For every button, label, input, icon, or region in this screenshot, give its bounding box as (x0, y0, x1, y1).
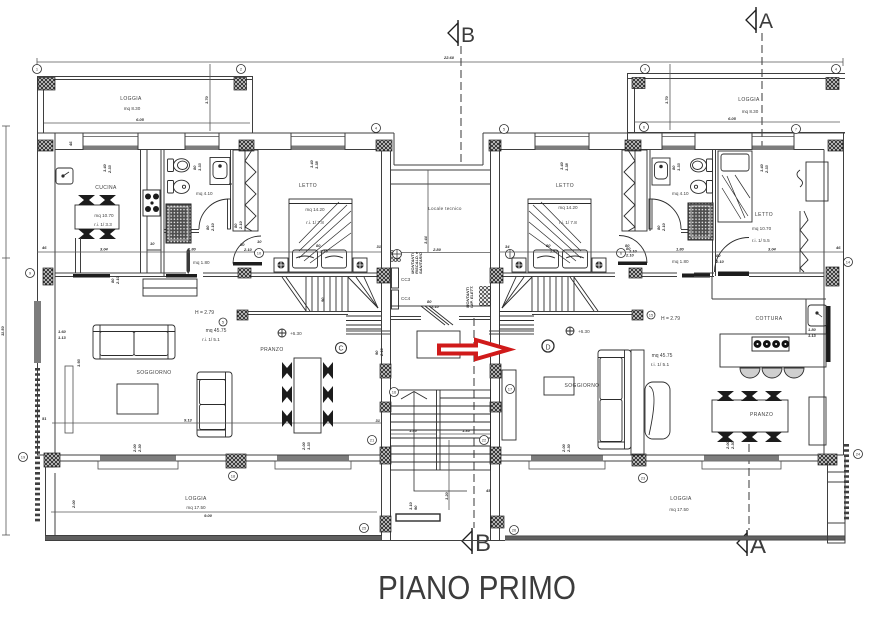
svg-text:mq 45.75: mq 45.75 (652, 353, 673, 359)
svg-text:1.33: 1.33 (197, 162, 202, 171)
svg-text:r.i. 1/ 5.5: r.i. 1/ 5.5 (752, 238, 770, 243)
svg-text:+6.30: +6.30 (290, 331, 302, 336)
svg-text:2.30: 2.30 (566, 443, 571, 453)
svg-text:mq 17.50: mq 17.50 (669, 507, 689, 512)
svg-text:SANITARIO: SANITARIO (418, 251, 423, 274)
svg-text:2.10: 2.10 (549, 249, 559, 254)
svg-text:mq 10.70: mq 10.70 (94, 213, 114, 218)
svg-text:31: 31 (377, 244, 382, 249)
svg-text:COTTURA: COTTURA (756, 316, 783, 322)
svg-text:80: 80 (716, 253, 721, 258)
svg-text:LOGGIA: LOGGIA (120, 96, 142, 102)
svg-text:SOGGIORNO: SOGGIORNO (565, 383, 600, 389)
svg-text:mq 4.10: mq 4.10 (672, 191, 689, 196)
svg-text:2.10: 2.10 (238, 220, 243, 230)
svg-text:LOGGIA: LOGGIA (738, 97, 760, 103)
svg-text:CUCINA: CUCINA (95, 185, 117, 191)
svg-text:19: 19 (21, 455, 26, 460)
svg-text:CC4: CC4 (401, 296, 411, 301)
svg-text:mq 8.30: mq 8.30 (124, 106, 141, 111)
svg-text:A: A (759, 10, 773, 33)
svg-text:2.10: 2.10 (210, 222, 215, 232)
svg-text:Locale tecnico: Locale tecnico (428, 206, 462, 211)
svg-text:2.10: 2.10 (115, 275, 120, 285)
svg-text:2.30: 2.30 (730, 440, 735, 450)
svg-text:14: 14 (846, 260, 851, 265)
svg-text:2.10: 2.10 (430, 304, 440, 309)
svg-text:mq 10.70: mq 10.70 (752, 226, 772, 231)
svg-text:mq 14.20: mq 14.20 (305, 207, 325, 212)
svg-text:PIANO PRIMO: PIANO PRIMO (378, 570, 576, 607)
svg-text:r.i. 1/ 3.3: r.i. 1/ 3.3 (94, 222, 112, 227)
svg-text:2.10: 2.10 (243, 247, 253, 252)
svg-text:11.50: 11.50 (0, 326, 5, 336)
svg-text:r.i. 1/ 5.1: r.i. 1/ 5.1 (202, 337, 220, 342)
svg-text:mq 14.20: mq 14.20 (558, 205, 578, 210)
svg-text:22.60: 22.60 (443, 55, 455, 60)
svg-text:D: D (545, 345, 550, 352)
svg-text:16: 16 (392, 390, 397, 395)
svg-text:34: 34 (505, 244, 510, 249)
svg-text:B: B (475, 530, 491, 557)
svg-text:1.30: 1.30 (409, 428, 418, 433)
svg-text:3.44: 3.44 (423, 235, 428, 244)
svg-text:2.10: 2.10 (628, 249, 638, 254)
svg-text:90: 90 (413, 505, 418, 510)
svg-text:2.30: 2.30 (137, 443, 142, 453)
svg-text:1.93: 1.93 (76, 358, 81, 367)
svg-text:LETTO: LETTO (556, 183, 574, 189)
svg-text:1.30: 1.30 (462, 428, 471, 433)
svg-text:1.80: 1.80 (676, 247, 685, 252)
svg-text:1.13: 1.13 (58, 335, 67, 340)
svg-text:46: 46 (41, 245, 47, 250)
svg-text:15: 15 (649, 313, 654, 318)
svg-text:PRANZO: PRANZO (260, 347, 283, 353)
svg-text:1.70: 1.70 (664, 95, 669, 104)
svg-text:1.80: 1.80 (808, 327, 817, 332)
svg-text:+6.30: +6.30 (578, 329, 590, 334)
svg-text:6.05: 6.05 (136, 117, 145, 122)
svg-text:r.i. 1/ 5.1: r.i. 1/ 5.1 (651, 362, 670, 368)
svg-text:2.10: 2.10 (661, 222, 666, 232)
svg-text:r.i. 1/ 7.8: r.i. 1/ 7.8 (306, 220, 324, 225)
svg-text:24: 24 (856, 452, 861, 457)
svg-text:1.38: 1.38 (314, 160, 319, 169)
svg-text:2.33: 2.33 (107, 164, 112, 174)
svg-text:21: 21 (370, 438, 375, 443)
svg-text:3.04: 3.04 (768, 247, 777, 252)
svg-text:mq 4.10: mq 4.10 (196, 191, 213, 196)
svg-text:2.10: 2.10 (379, 347, 384, 357)
svg-text:26: 26 (512, 528, 517, 533)
svg-text:LETTO: LETTO (299, 183, 317, 189)
svg-text:10: 10 (257, 239, 262, 244)
svg-text:10: 10 (150, 241, 155, 246)
svg-text:LOGGIA: LOGGIA (670, 496, 692, 502)
svg-text:LETTO: LETTO (755, 212, 773, 218)
svg-text:mq 8.30: mq 8.30 (742, 109, 759, 114)
svg-text:CC3: CC3 (401, 277, 411, 282)
svg-text:46: 46 (68, 141, 73, 147)
svg-text:2.10: 2.10 (715, 259, 725, 264)
svg-text:2.33: 2.33 (764, 164, 769, 174)
svg-text:10: 10 (257, 251, 262, 256)
svg-text:1.33: 1.33 (676, 162, 681, 171)
svg-text:46: 46 (835, 245, 841, 250)
svg-text:H = 2.79: H = 2.79 (195, 310, 214, 316)
svg-text:9.13: 9.13 (184, 418, 193, 423)
svg-text:18: 18 (231, 474, 236, 479)
svg-text:3.04: 3.04 (100, 247, 109, 252)
svg-text:1.38: 1.38 (564, 162, 569, 171)
svg-text:PRANZO: PRANZO (750, 412, 773, 418)
svg-text:45: 45 (485, 488, 491, 493)
svg-text:r.i. 1/ 7.8: r.i. 1/ 7.8 (559, 220, 577, 225)
svg-text:25: 25 (362, 526, 367, 531)
svg-text:mq 45.75: mq 45.75 (206, 328, 227, 334)
svg-text:LOGGIA: LOGGIA (185, 496, 207, 502)
svg-text:C: C (338, 346, 343, 353)
svg-text:mq 1.80: mq 1.80 (672, 259, 689, 264)
svg-text:80: 80 (625, 243, 630, 248)
svg-text:90: 90 (320, 297, 325, 302)
svg-text:9.00: 9.00 (204, 513, 213, 518)
svg-text:1.33: 1.33 (306, 441, 311, 450)
svg-text:H = 2.79: H = 2.79 (661, 316, 680, 322)
svg-text:B: B (461, 24, 475, 47)
svg-text:17: 17 (508, 387, 513, 392)
svg-text:mq 17.50: mq 17.50 (186, 505, 206, 510)
svg-text:2.00: 2.00 (71, 499, 76, 509)
svg-text:6.05: 6.05 (728, 116, 737, 121)
svg-text:mq 1.80: mq 1.80 (193, 260, 210, 265)
svg-text:1.20: 1.20 (444, 491, 449, 500)
svg-text:SOGGIORNO: SOGGIORNO (137, 370, 172, 376)
svg-text:2.80: 2.80 (432, 247, 442, 252)
svg-text:IMP. ELETT.: IMP. ELETT. (469, 286, 474, 308)
svg-text:31: 31 (376, 418, 381, 423)
svg-text:51: 51 (42, 416, 47, 421)
svg-text:22: 22 (482, 438, 487, 443)
svg-text:1.70: 1.70 (204, 95, 209, 104)
svg-text:23: 23 (641, 476, 646, 481)
svg-text:1.80: 1.80 (188, 247, 197, 252)
svg-text:1.13: 1.13 (808, 333, 817, 338)
svg-text:1.60: 1.60 (58, 329, 67, 334)
svg-text:80: 80 (316, 243, 321, 248)
svg-text:80: 80 (546, 243, 551, 248)
svg-text:2.10: 2.10 (319, 249, 329, 254)
